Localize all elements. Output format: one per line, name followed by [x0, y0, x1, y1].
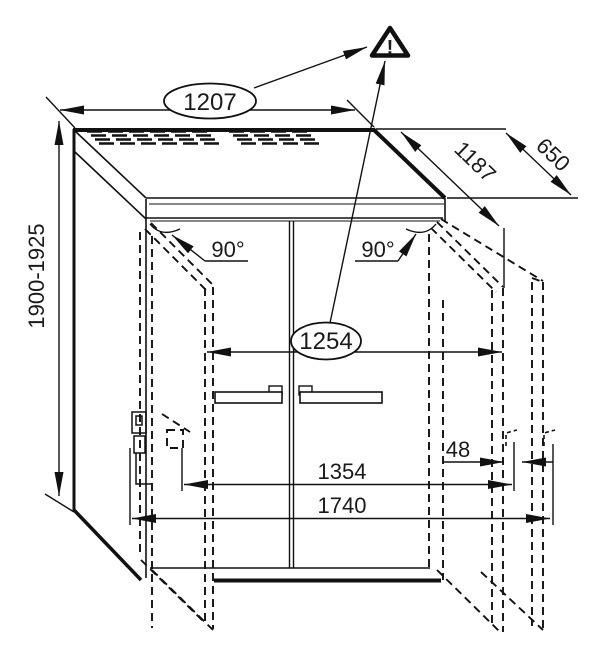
- leader-1207-to-warning: [254, 47, 367, 88]
- right-door-handle: [299, 386, 382, 403]
- left-door-handle: [215, 386, 282, 403]
- label-angle-left: 90°: [211, 237, 244, 262]
- cabinet-outline: [73, 129, 445, 581]
- label-depth-with-door: 1187: [450, 136, 501, 187]
- leader-1254-to-warning: [330, 61, 385, 323]
- left-hinge-detail: [132, 412, 152, 484]
- dimension-lines: [45, 47, 578, 525]
- door-handles: [215, 386, 382, 403]
- label-top-width: 1207: [183, 89, 236, 116]
- left-door-open-dashed: [140, 223, 214, 630]
- label-overall-width: 1740: [318, 493, 367, 518]
- label-height-range: 1900-1925: [24, 223, 49, 328]
- label-depth: 650: [531, 133, 575, 176]
- technical-drawing: ! 1207 1254 1900-1925 1187 650 90° 90° 1…: [0, 0, 603, 658]
- label-angle-right: 90°: [361, 237, 394, 262]
- vent-grille-icon: [87, 132, 319, 144]
- dimension-height: [45, 121, 74, 512]
- installation-diagram: ! 1207 1254 1900-1925 1187 650 90° 90° 1…: [0, 0, 603, 658]
- label-hinge-clearance: 48: [446, 437, 470, 462]
- label-circled-width: 1254: [299, 328, 352, 355]
- warning-triangle-icon: !: [372, 28, 408, 59]
- label-width-doors-open: 1354: [318, 459, 367, 484]
- right-door-open-dashed: [429, 219, 543, 632]
- warning-exclamation: !: [387, 37, 394, 59]
